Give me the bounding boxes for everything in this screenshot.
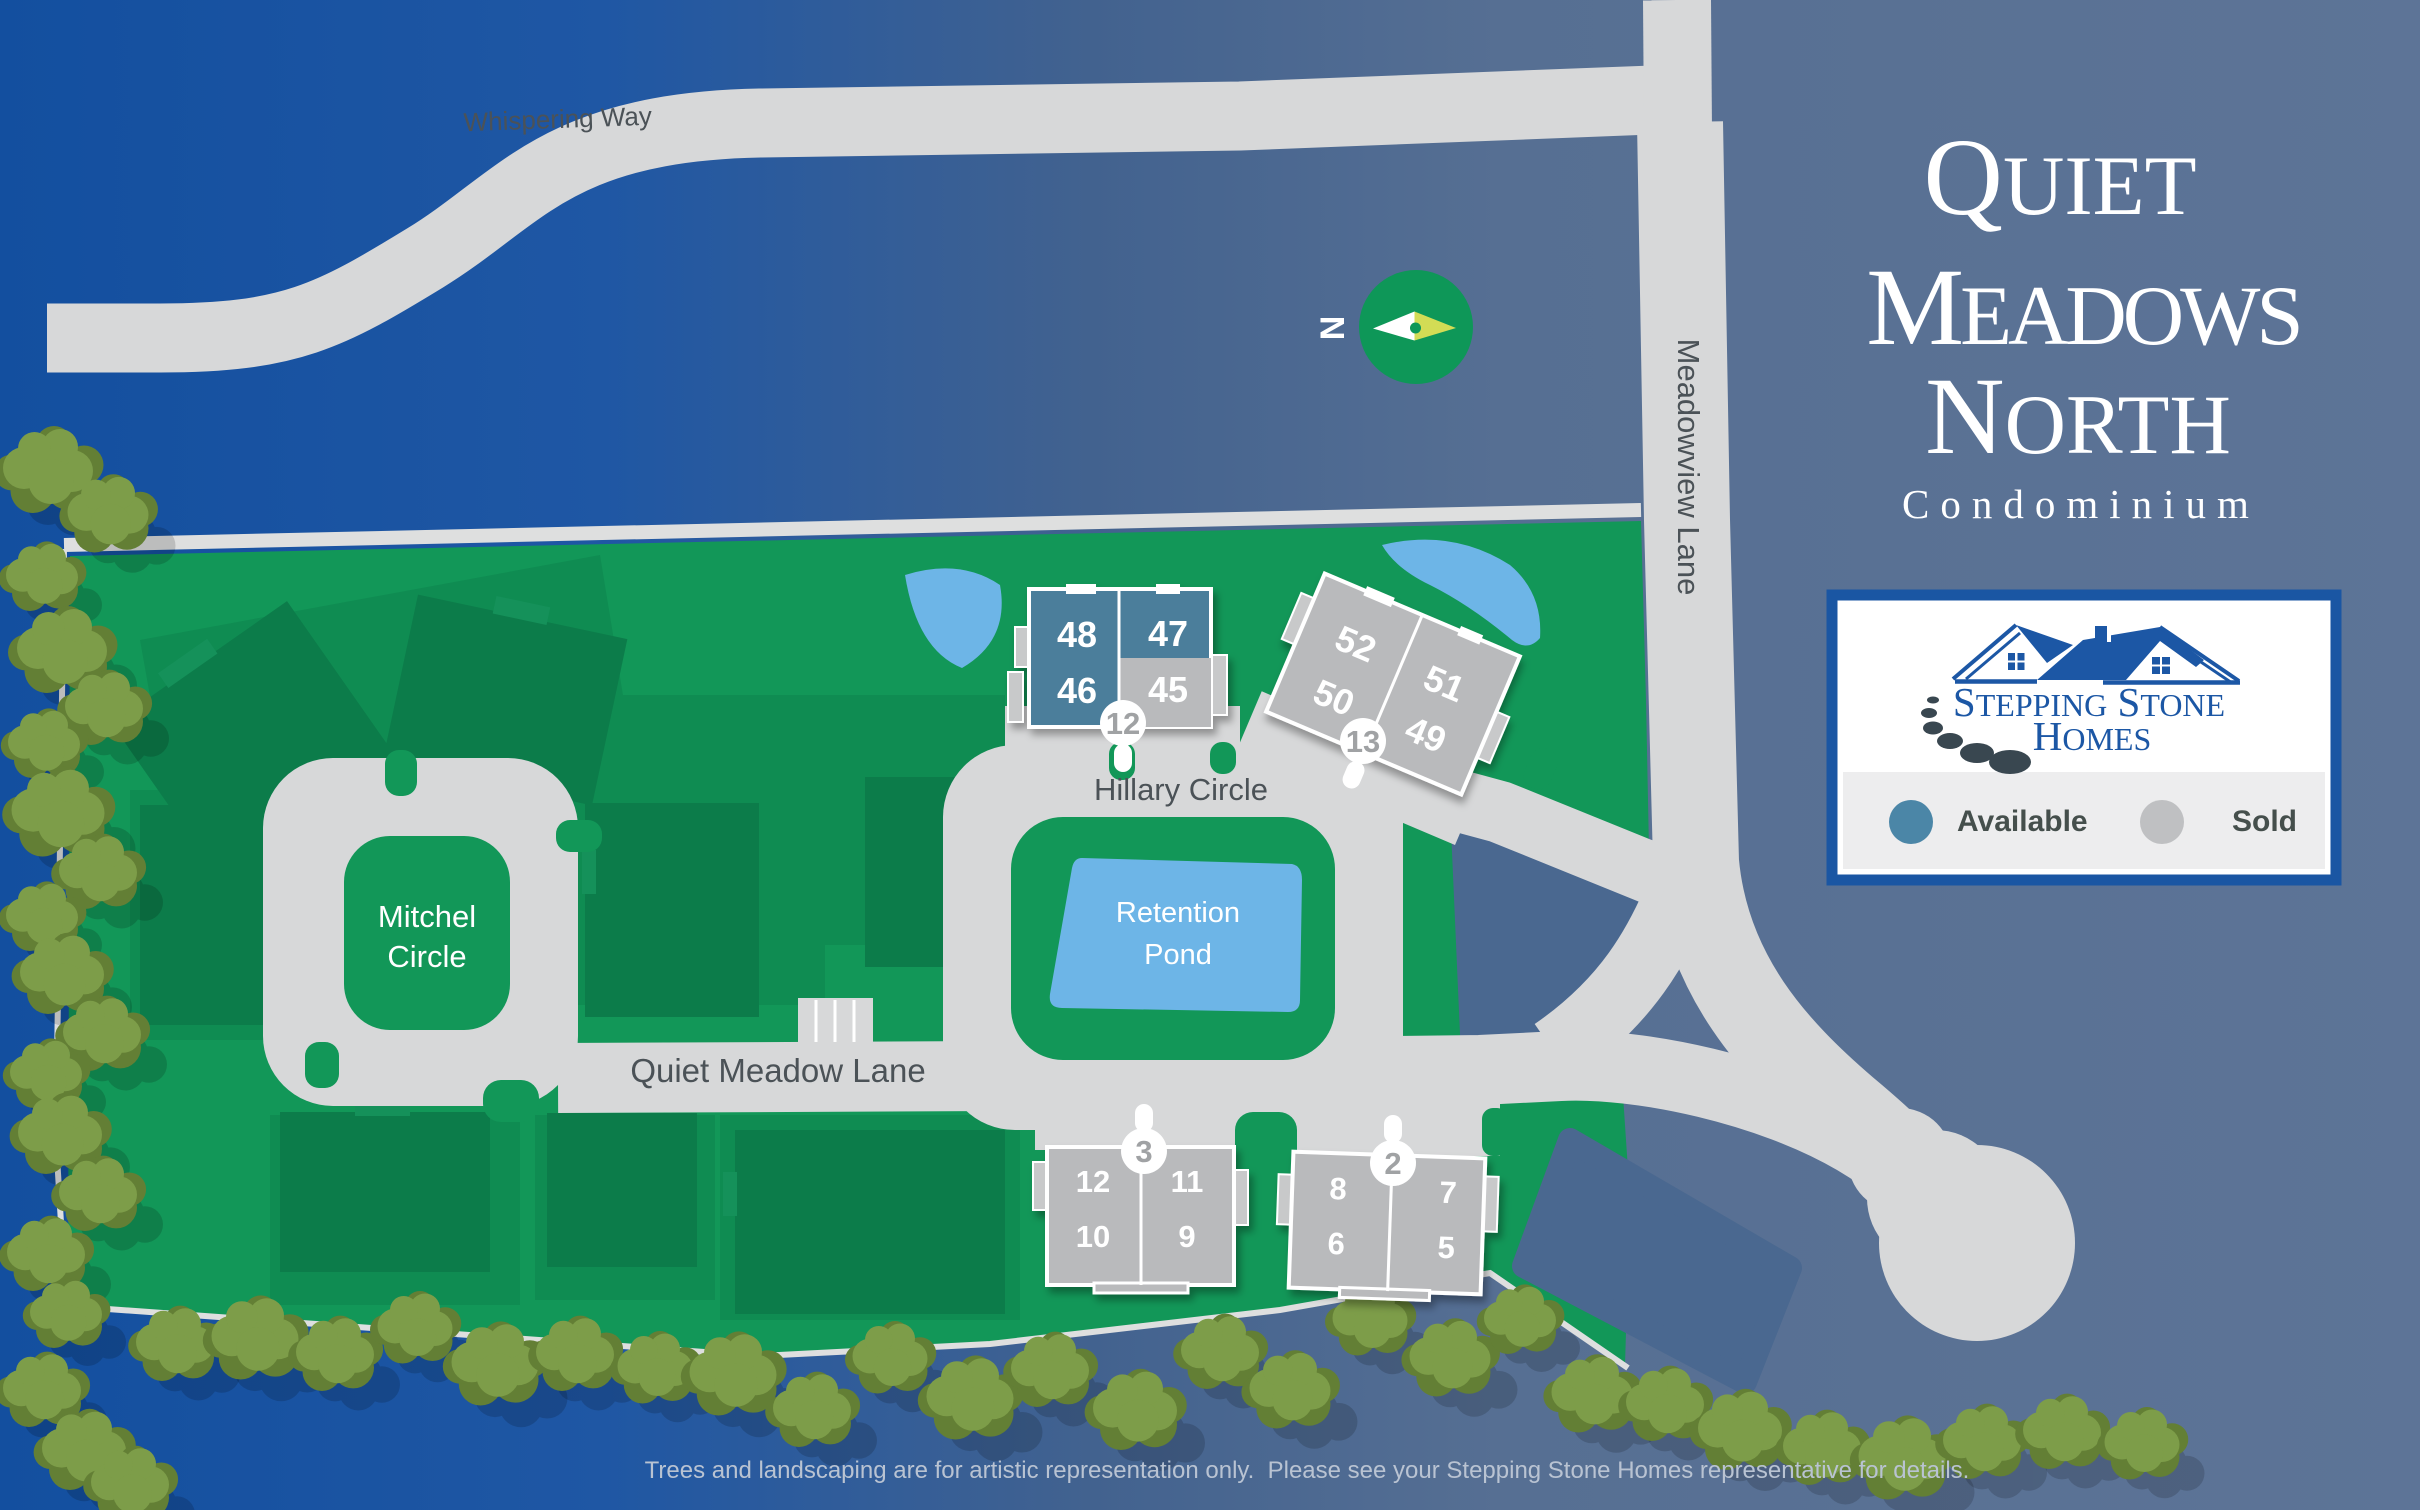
svg-text:46: 46 [1057,670,1097,711]
svg-text:5: 5 [1437,1230,1455,1266]
svg-text:Mitchel: Mitchel [378,899,476,934]
svg-text:N: N [1314,316,1352,341]
svg-text:Pond: Pond [1144,939,1212,971]
svg-text:7: 7 [1439,1175,1457,1211]
svg-text:10: 10 [1076,1219,1110,1254]
svg-text:6: 6 [1327,1226,1345,1262]
svg-text:12: 12 [1106,706,1140,741]
svg-text:48: 48 [1057,614,1097,655]
svg-text:13: 13 [1346,724,1380,759]
svg-text:Available: Available [1957,805,2088,838]
svg-text:Retention: Retention [1116,897,1240,929]
svg-text:Quiet Meadow Lane: Quiet Meadow Lane [630,1052,925,1089]
svg-text:Sold: Sold [2232,805,2297,838]
svg-text:47: 47 [1148,613,1188,654]
svg-text:8: 8 [1329,1171,1347,1207]
svg-text:Hillary Circle: Hillary Circle [1094,772,1268,807]
svg-text:Meadowview Lane: Meadowview Lane [1671,339,1706,596]
svg-text:11: 11 [1171,1164,1204,1199]
svg-text:45: 45 [1148,669,1188,710]
svg-text:3: 3 [1135,1134,1152,1169]
svg-text:9: 9 [1178,1219,1195,1254]
svg-text:Condominium: Condominium [1902,481,2260,527]
svg-text:Trees and landscaping are for: Trees and landscaping are for artistic r… [645,1457,1970,1484]
svg-text:Circle: Circle [387,939,466,974]
svg-text:2: 2 [1384,1146,1401,1181]
svg-text:12: 12 [1076,1164,1110,1199]
